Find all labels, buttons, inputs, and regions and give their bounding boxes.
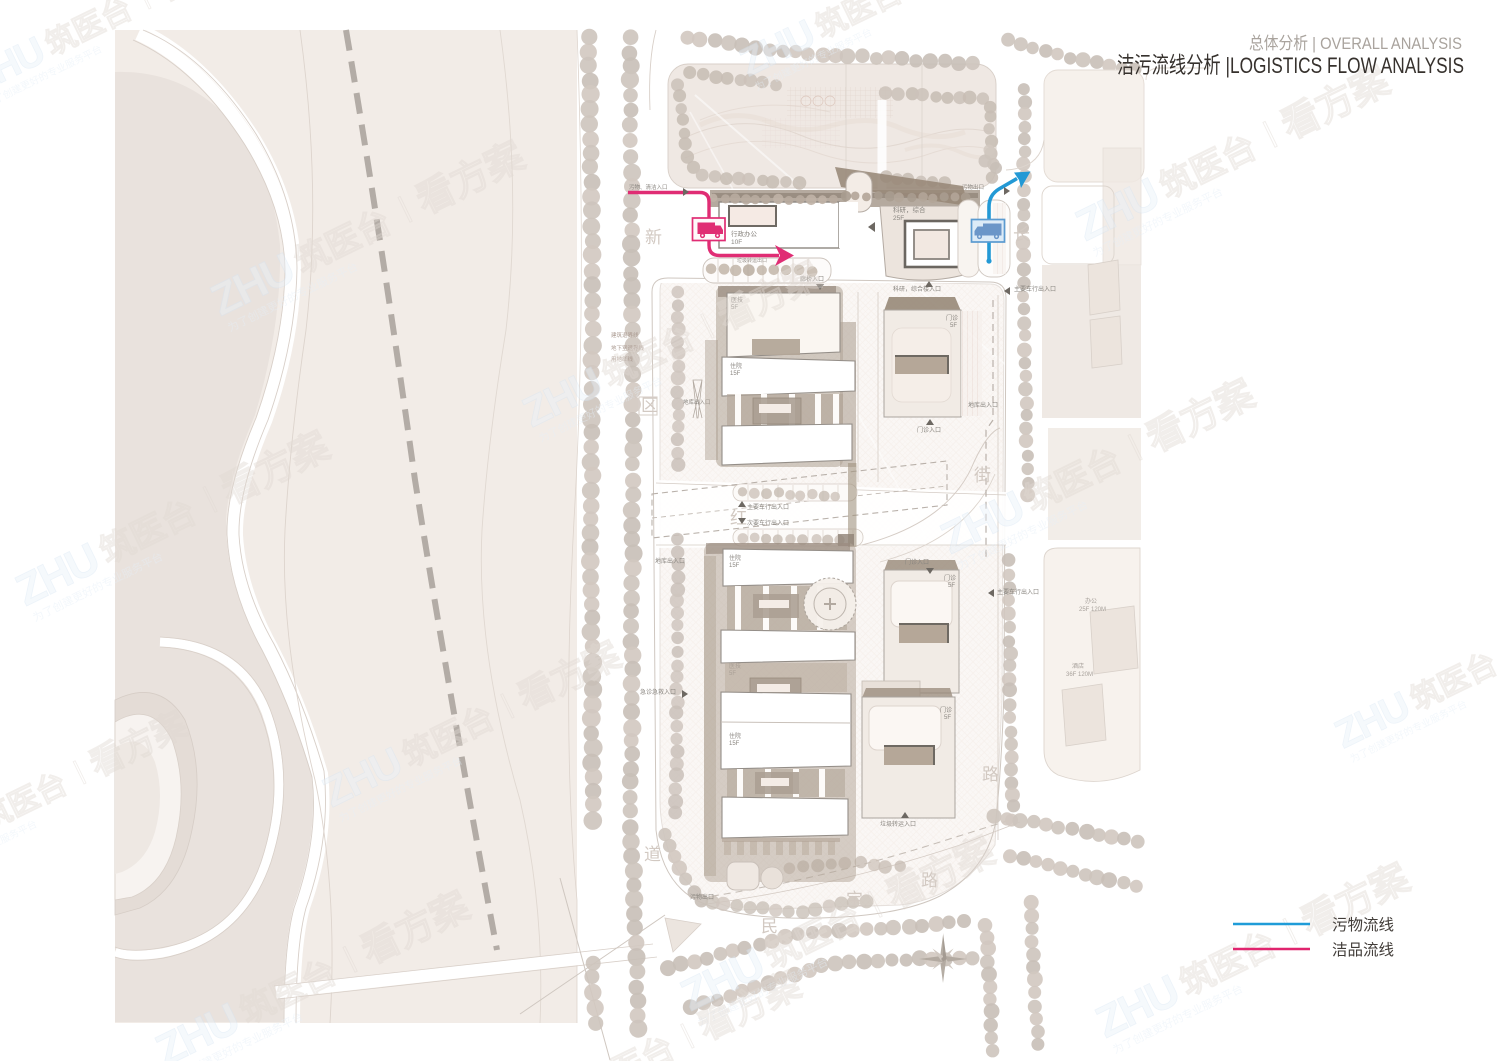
svg-text:10F: 10F xyxy=(731,239,742,246)
svg-text:15F: 15F xyxy=(729,563,740,569)
svg-text:垃圾转运出口: 垃圾转运出口 xyxy=(737,257,767,264)
svg-text:住院: 住院 xyxy=(729,554,741,562)
svg-text:洁污流线分析 |LOGISTICS FLOW ANALYSI: 洁污流线分析 |LOGISTICS FLOW ANALYSIS xyxy=(1117,53,1464,78)
svg-text:门诊: 门诊 xyxy=(944,574,956,582)
svg-text:门诊: 门诊 xyxy=(940,706,952,714)
svg-text:长: 长 xyxy=(1013,225,1030,244)
svg-text:路: 路 xyxy=(982,765,999,784)
svg-text:污物出口: 污物出口 xyxy=(690,893,714,901)
svg-text:次要车行出入口: 次要车行出入口 xyxy=(747,519,789,527)
svg-text:25F 120M: 25F 120M xyxy=(1079,607,1106,613)
svg-text:总体分析 | OVERALL ANALYSIS: 总体分析 | OVERALL ANALYSIS xyxy=(1249,34,1462,53)
svg-text:住院: 住院 xyxy=(729,732,741,740)
svg-text:主要车行出入口: 主要车行出入口 xyxy=(747,503,789,511)
svg-text:行政办公: 行政办公 xyxy=(731,229,758,238)
svg-text:街: 街 xyxy=(974,466,991,485)
svg-text:洁品流线: 洁品流线 xyxy=(1332,941,1394,959)
svg-text:办公: 办公 xyxy=(1085,597,1097,605)
svg-text:36F 120M: 36F 120M xyxy=(1066,672,1093,678)
svg-text:15F: 15F xyxy=(730,371,741,377)
svg-text:主要车行出入口: 主要车行出入口 xyxy=(997,588,1039,596)
svg-text:酒店: 酒店 xyxy=(1072,662,1084,670)
svg-text:急诊急救入口: 急诊急救入口 xyxy=(640,688,676,696)
svg-text:地库出入口: 地库出入口 xyxy=(655,557,685,565)
svg-text:筑医台: 筑医台 xyxy=(577,1029,680,1061)
svg-text:民: 民 xyxy=(761,917,778,936)
svg-text:门诊: 门诊 xyxy=(946,314,958,322)
svg-text:15F: 15F xyxy=(729,741,740,747)
svg-text:区: 区 xyxy=(641,396,658,415)
svg-text:住院: 住院 xyxy=(730,362,742,370)
svg-text:建筑退界线: 建筑退界线 xyxy=(611,331,639,339)
svg-text:门诊入口: 门诊入口 xyxy=(905,558,929,566)
svg-text:主要车行出入口: 主要车行出入口 xyxy=(1014,285,1056,293)
svg-text:科研，综合: 科研，综合 xyxy=(893,205,926,214)
svg-text:门诊入口: 门诊入口 xyxy=(917,426,941,434)
svg-text:25F: 25F xyxy=(893,215,904,222)
svg-text:污物出口: 污物出口 xyxy=(962,183,984,191)
svg-text:污物、清洁入口: 污物、清洁入口 xyxy=(629,183,668,191)
svg-text:科研，综合楼入口: 科研，综合楼入口 xyxy=(893,285,941,293)
svg-text:看方案: 看方案 xyxy=(1140,373,1262,461)
svg-text:污物流线: 污物流线 xyxy=(1332,916,1394,934)
svg-text:5F: 5F xyxy=(950,323,957,329)
svg-text:道: 道 xyxy=(644,845,661,864)
svg-text:垃圾转运入口: 垃圾转运入口 xyxy=(880,820,916,828)
svg-text:看方案: 看方案 xyxy=(149,0,259,10)
svg-text:地库出入口: 地库出入口 xyxy=(968,401,998,409)
svg-text:5F: 5F xyxy=(944,715,951,721)
svg-text:新: 新 xyxy=(645,228,662,247)
svg-text:5F: 5F xyxy=(948,583,955,589)
